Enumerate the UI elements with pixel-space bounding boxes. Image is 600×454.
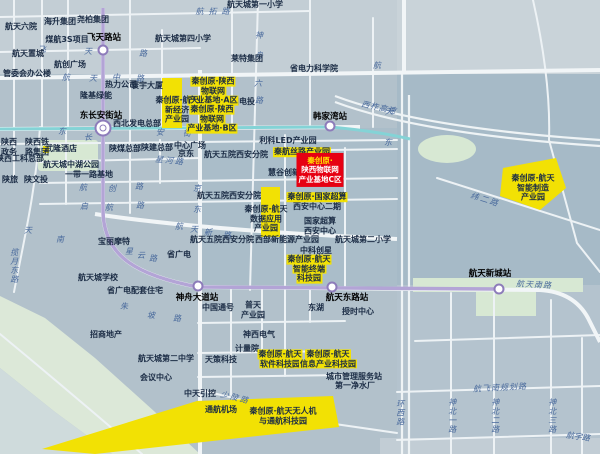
- poi-label: 京东: [178, 149, 194, 159]
- highlight-label-line: 科技园: [296, 274, 322, 284]
- poi-label: 海升集团: [44, 17, 76, 27]
- poi-label: 天策科技: [205, 355, 237, 365]
- poi-label: 神西电气: [243, 330, 275, 340]
- street-label: 南: [56, 235, 64, 245]
- metro-station-marker: [327, 282, 338, 293]
- poi-label: 通航机场: [205, 405, 237, 415]
- highlight-label-line: 秦创原·航天: [257, 349, 302, 359]
- street-label: 星: [125, 247, 133, 257]
- street-label: 路: [255, 96, 263, 106]
- highlight-label-line: 数据应用: [249, 214, 283, 224]
- street-label: 天: [89, 74, 97, 84]
- highlight-label-line: 软件科技园: [259, 359, 301, 369]
- metro-station-label: 东长安街站: [80, 111, 123, 121]
- poi-label: 莱特集团: [231, 54, 263, 64]
- street-label: 六: [254, 79, 262, 89]
- street-label: 路: [149, 254, 157, 264]
- highlight-label-line: 秦创原·航天: [243, 205, 288, 215]
- highlight-label-yellow: 秦创原·航天新经济产业园: [154, 96, 199, 125]
- highlight-label-line: 秦创原·航天: [154, 96, 199, 106]
- poi-label: 省广电配套住宅: [107, 286, 163, 296]
- metro-station-marker: [325, 121, 336, 132]
- highlight-label-line: 秦创原·航天: [305, 349, 350, 359]
- street-label: 路: [135, 182, 143, 192]
- northeast-district: [397, 0, 600, 74]
- poi-label: 航天城第二小学: [335, 235, 391, 245]
- street-label: 云: [137, 251, 145, 261]
- street-label: 路: [139, 49, 147, 59]
- poi-label: 普天产业园: [241, 300, 265, 319]
- poi-label: 煤航3S项目: [45, 35, 88, 45]
- poi-label: 尧柏集团: [77, 15, 109, 25]
- highlight-label-line: 信息产业科技园: [299, 359, 357, 369]
- poi-label: 西安中心二期: [293, 202, 341, 212]
- highlight-label-line: 秦创原·航天: [286, 255, 331, 265]
- highlight-label-line: 秦创原·国家超算: [286, 192, 347, 202]
- poi-label: 国家超算西安中心: [304, 216, 336, 235]
- highlight-label-line: 新经济: [164, 105, 190, 115]
- poi-label: 陕煤总部: [109, 144, 141, 154]
- poi-label: 航天城第四小学: [155, 34, 211, 44]
- poi-label: 航天五院西安分院: [190, 235, 254, 245]
- highlight-label-yellow: 秦创原·航天数据应用产业园: [243, 205, 288, 234]
- poi-label: 省电力科学院: [290, 64, 338, 74]
- street-label: 神北三路: [547, 398, 557, 434]
- highlight-label-line: 秦创原·陕西: [190, 77, 235, 87]
- street-label: 路: [173, 314, 181, 324]
- poi-label: 航天城第二中学: [138, 354, 194, 364]
- street-label: 神北一路: [447, 398, 457, 434]
- poi-label: 陕旅: [2, 175, 18, 185]
- poi-label: 东湖: [308, 303, 324, 313]
- poi-label: 第一净水厂: [335, 381, 375, 391]
- metro-station-marker: [193, 281, 204, 292]
- street-label: 安: [156, 128, 164, 138]
- highlight-label-line: 秦创原·航天无人机: [248, 406, 317, 416]
- poi-label: 航天城中湖公园: [43, 160, 99, 170]
- poi-label-line: 陕西: [1, 137, 17, 147]
- street-label: 路: [136, 201, 144, 211]
- metro-station-marker: [98, 45, 109, 56]
- street-label: 航天南路: [516, 279, 552, 290]
- highlight-label-yellow: 秦创原·航天信息产业科技园: [299, 349, 357, 368]
- poi-label: 中天引控: [184, 389, 216, 399]
- poi-label: 陕建总部: [141, 143, 173, 153]
- metro-station-label: 航天东路站: [326, 293, 369, 303]
- red-label-line: 秦创原·: [298, 156, 341, 165]
- highlight-label-line: 物联网: [200, 86, 226, 96]
- poi-label: 陕文投: [24, 175, 48, 185]
- street-label: 神: [255, 31, 263, 41]
- highlight-label-yellow: 秦创原·航天软件科技园: [257, 349, 302, 368]
- street-label: 东: [384, 138, 392, 148]
- metro-station-label: 航天新城站: [469, 269, 512, 279]
- poi-label: 管委会办公楼: [3, 69, 51, 79]
- street-label: 朱: [120, 302, 128, 312]
- highlight-label-yellow: 秦创原·航天无人机与通航科技园: [248, 406, 317, 425]
- poi-label: 招商地产: [90, 330, 122, 340]
- poi-label: 隆基绿能: [80, 91, 112, 101]
- highlight-label-line: 智能终端: [292, 264, 326, 274]
- metro-station-label: 韩家湾站: [313, 112, 347, 122]
- street-label: 环西路: [395, 400, 405, 427]
- east-district: [397, 74, 600, 285]
- street-label: 长: [84, 133, 92, 143]
- poi-label: 武隆酒店: [45, 144, 77, 154]
- metro-station-marker: [95, 120, 112, 137]
- highlight-label-line: 产业园: [520, 193, 546, 203]
- street-label: 航: [79, 183, 87, 193]
- street-label: 航: [175, 222, 183, 232]
- highlight-label-yellow: 秦创原·航天智能制造产业园: [510, 174, 555, 203]
- poi-label: 航天五院西安分院: [197, 191, 261, 201]
- highlight-label-yellow: 秦创原·国家超算: [286, 192, 347, 202]
- red-label-line: 陕西物联网: [298, 165, 341, 174]
- street-label: 启: [80, 202, 88, 212]
- street-label: 揽月东路: [9, 248, 19, 284]
- metro-station-marker: [494, 284, 505, 295]
- poi-label: 航创广场: [54, 60, 86, 70]
- poi-label: 省广电: [167, 250, 191, 260]
- metro-station-label: 神舟大道站: [176, 293, 219, 303]
- poi-label: 航天置城: [12, 49, 44, 59]
- aerospace-base-map: 航天六院海升集团尧柏集团煤航3S项目航天置城航创广场管委会办公楼热力公司寰宇大厦…: [0, 0, 600, 454]
- highlight-label-line: 智能制造: [516, 183, 550, 193]
- street-label: 航: [373, 61, 381, 71]
- metro-station-label: 飞天路站: [87, 33, 121, 43]
- highlight-label-line: 产业园: [253, 224, 279, 234]
- poi-label: 授时中心: [342, 307, 374, 317]
- highlight-label-red: 秦创原·陕西物联网产业基地C区: [296, 153, 343, 187]
- street-label: 航: [105, 203, 113, 213]
- street-label: 坡: [147, 311, 155, 321]
- highlight-label-line: 与通航科技园: [258, 416, 308, 426]
- poi-label: 航天城学校: [78, 273, 118, 283]
- street-label: 东: [193, 205, 201, 215]
- poi-label: 计量院: [235, 344, 259, 354]
- highlight-label-line: 产业基地·B区: [186, 124, 237, 134]
- poi-label-line: 普天: [241, 300, 265, 310]
- poi-label: 航天五院西安分院: [204, 150, 268, 160]
- street-label: 天: [190, 225, 198, 235]
- street-label: 航: [62, 73, 70, 83]
- poi-label: 中国通号: [202, 303, 234, 313]
- poi-label: 宝丽摩特: [98, 237, 130, 247]
- poi-label-line: 产业园: [241, 310, 265, 320]
- poi-label-line: 国家超算: [304, 216, 336, 226]
- street-label: 东: [58, 127, 66, 137]
- poi-label: 会议中心: [140, 373, 172, 383]
- poi-label: 西部新能源产业园: [255, 235, 319, 245]
- poi-label: 寰宇大厦: [131, 81, 163, 91]
- poi-label-line: 西安中心: [304, 226, 336, 236]
- street-label: 创: [108, 184, 116, 194]
- poi-label: 航天城第一小学: [227, 0, 283, 10]
- poi-label: 航天六院: [5, 22, 37, 32]
- poi-label: 一带一路基地: [65, 170, 113, 180]
- east-green-patch: [418, 135, 476, 163]
- poi-label: 陕西工科总部: [0, 154, 44, 164]
- red-label-line: 产业基地C区: [298, 175, 341, 184]
- street-label: 天: [24, 226, 32, 236]
- poi-label: 利科LED产业园: [259, 136, 316, 146]
- highlight-label-line: 秦创原·航天: [510, 174, 555, 184]
- highlight-label-yellow: 秦创原·航天智能终端科技园: [286, 255, 331, 284]
- highlight-label-line: 物联网: [199, 114, 225, 124]
- street-label: 天: [84, 47, 92, 57]
- street-label: 神北二路: [490, 398, 500, 434]
- highlight-label-line: 产业园: [164, 115, 190, 125]
